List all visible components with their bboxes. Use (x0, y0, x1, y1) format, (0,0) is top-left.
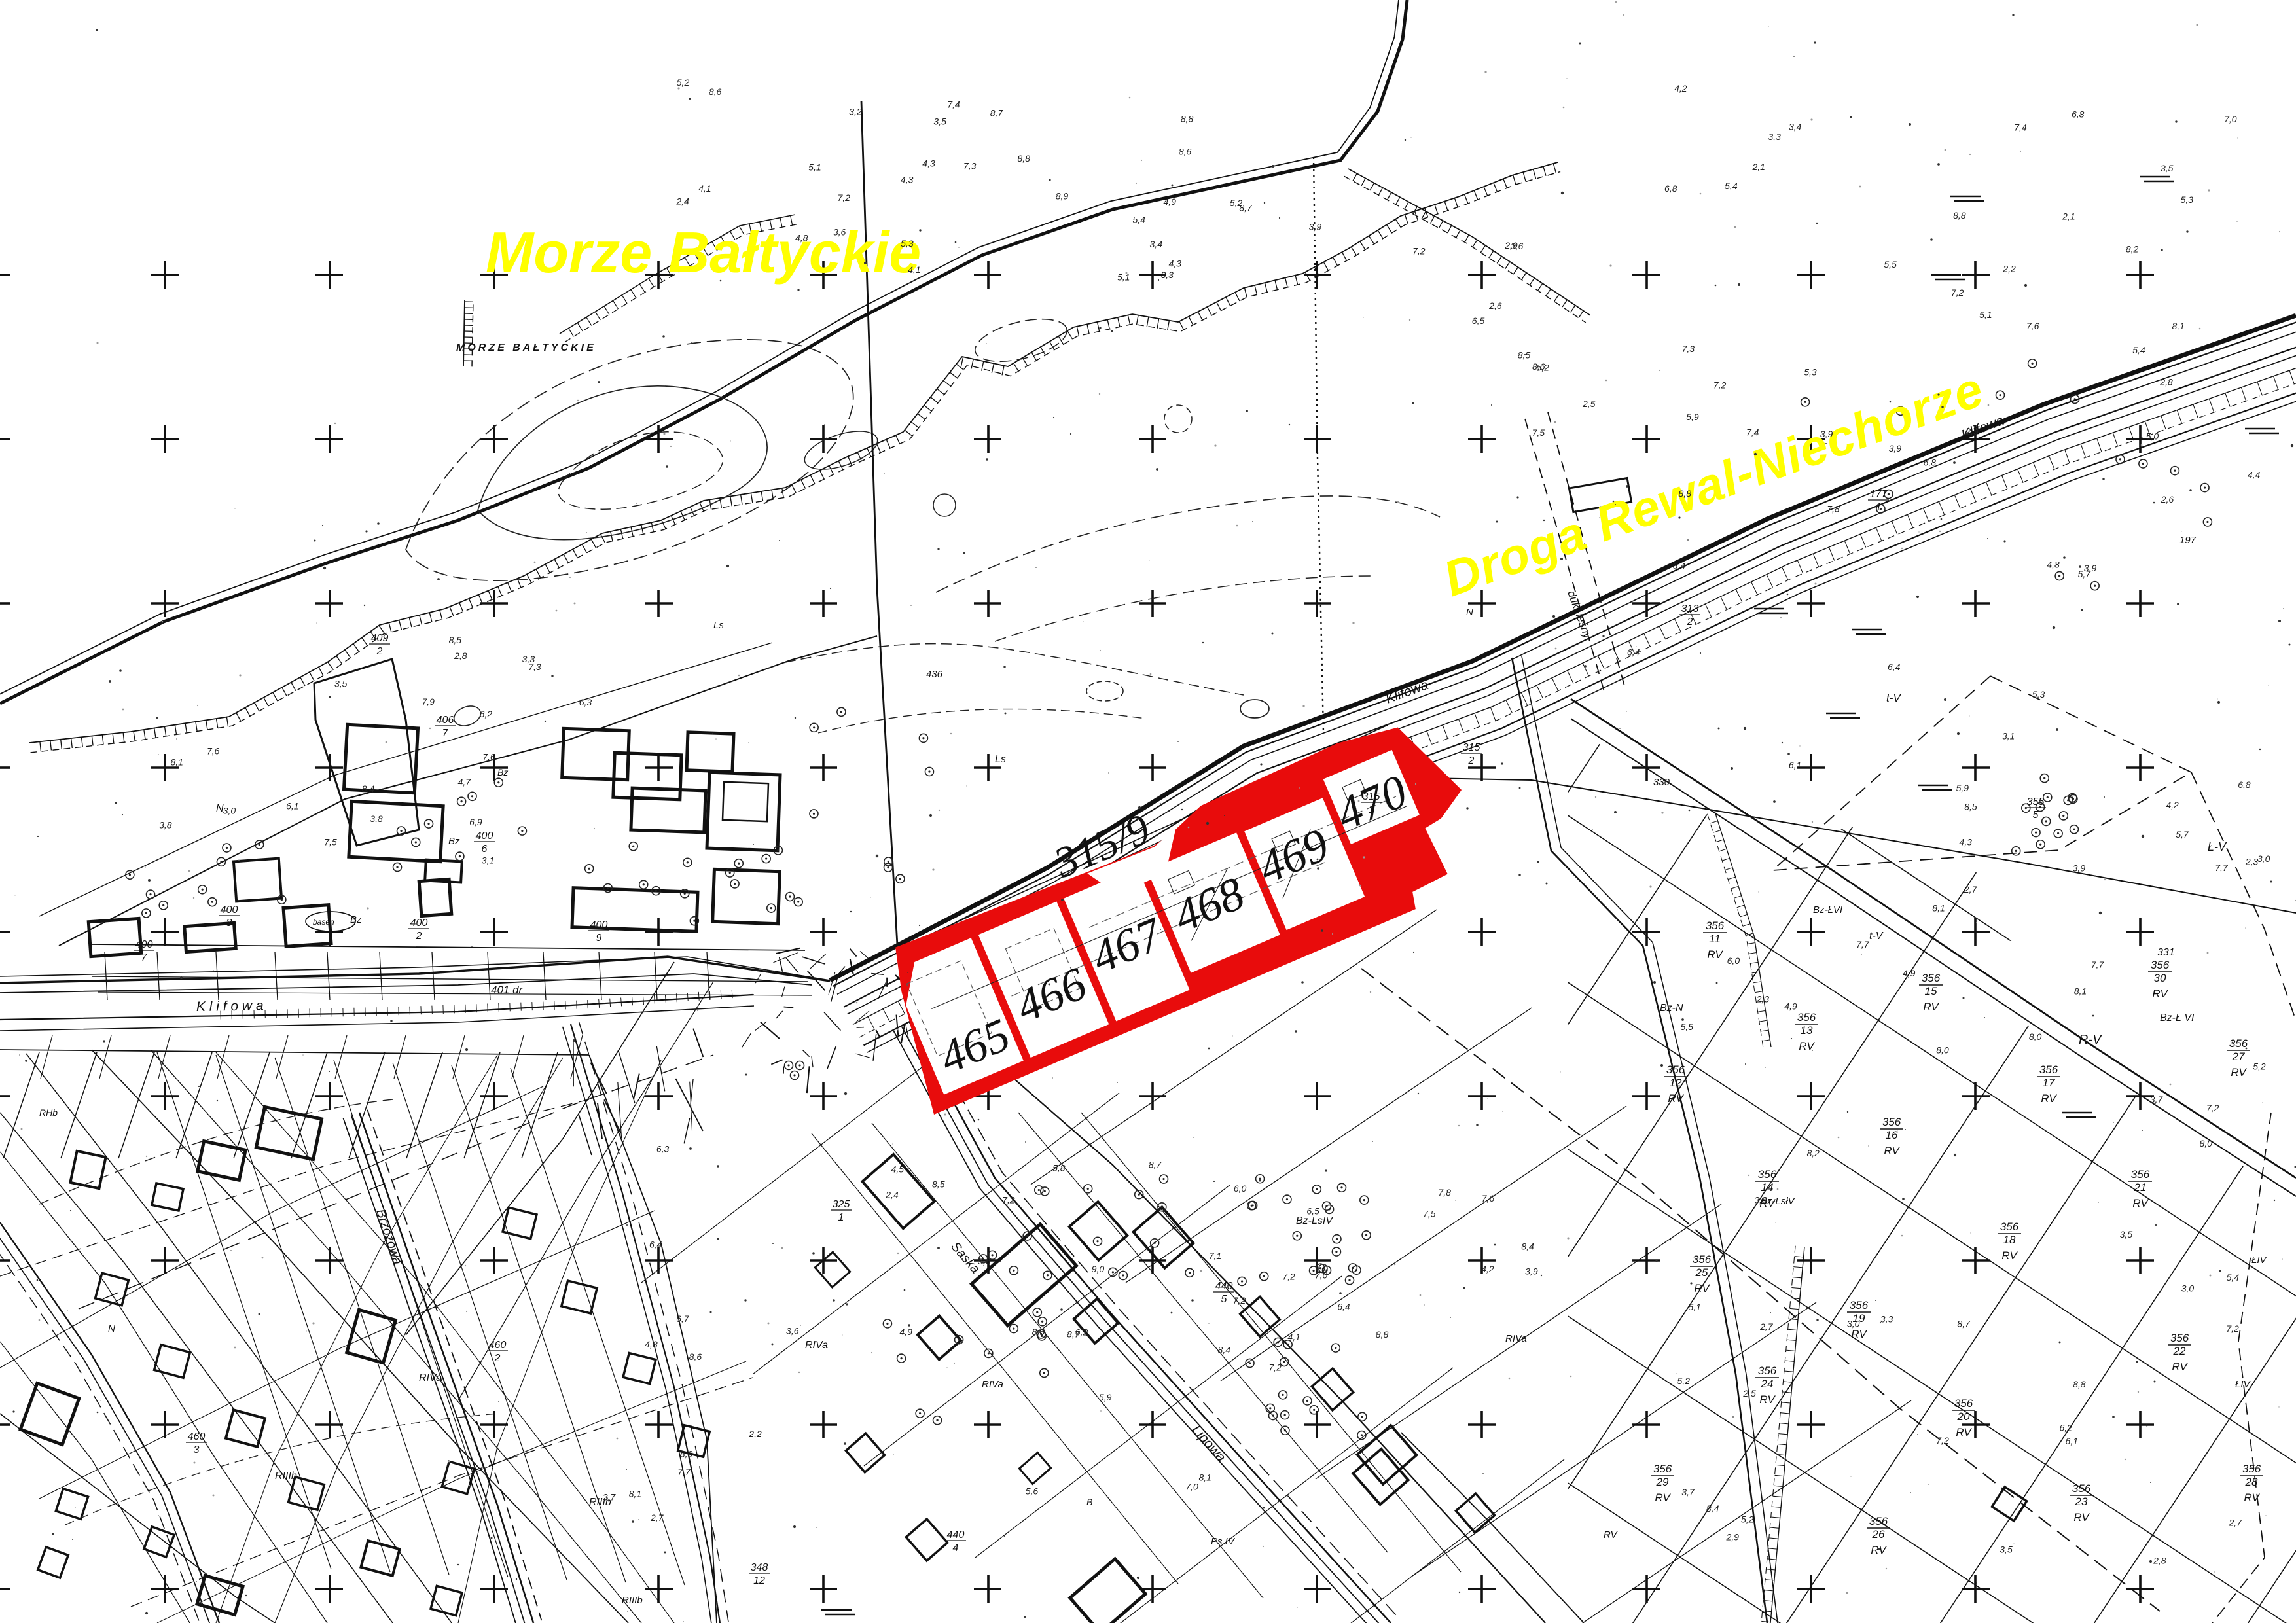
svg-text:8,6: 8,6 (1179, 146, 1192, 156)
svg-text:3,3: 3,3 (1768, 132, 1781, 142)
svg-text:3,7: 3,7 (2150, 1094, 2164, 1105)
svg-text:3,5: 3,5 (933, 116, 946, 126)
svg-text:6,0: 6,0 (1234, 1183, 1247, 1194)
svg-text:5,9: 5,9 (1099, 1392, 1112, 1402)
svg-text:8,4: 8,4 (1521, 1241, 1534, 1251)
svg-text:4,2: 4,2 (1481, 1264, 1494, 1274)
svg-text:2,6: 2,6 (2161, 494, 2174, 505)
svg-text:2,2: 2,2 (748, 1429, 762, 1439)
svg-text:5,5: 5,5 (1884, 259, 1897, 270)
svg-text:Bz-LsIV: Bz-LsIV (1296, 1215, 1333, 1226)
svg-text:331: 331 (2157, 947, 2175, 958)
svg-text:356: 356 (1758, 1364, 1777, 1377)
svg-text:3: 3 (194, 1444, 200, 1455)
svg-text:6,3: 6,3 (656, 1144, 670, 1154)
svg-text:N: N (1466, 607, 1473, 618)
svg-text:8,6: 8,6 (1532, 361, 1545, 372)
svg-text:8,5: 8,5 (1964, 802, 1977, 812)
svg-text:406: 406 (437, 715, 454, 726)
svg-text:8,1: 8,1 (2074, 986, 2087, 997)
svg-text:7,2: 7,2 (1282, 1272, 1295, 1282)
svg-text:2,1: 2,1 (1751, 162, 1765, 172)
svg-text:8,8: 8,8 (1953, 210, 1966, 221)
svg-text:RV: RV (1668, 1092, 1684, 1105)
svg-text:3,6: 3,6 (833, 226, 846, 237)
svg-text:4,5: 4,5 (891, 1164, 905, 1175)
svg-text:RIVa: RIVa (982, 1379, 1003, 1390)
svg-text:7,0: 7,0 (1315, 1270, 1328, 1280)
svg-text:355: 355 (2027, 796, 2045, 808)
svg-text:8,1: 8,1 (629, 1488, 641, 1499)
svg-text:2: 2 (1687, 616, 1693, 628)
svg-text:4,2: 4,2 (2166, 800, 2179, 810)
svg-text:8,4: 8,4 (1218, 1345, 1231, 1355)
svg-text:7,7: 7,7 (1856, 939, 1870, 950)
svg-text:5,1: 5,1 (808, 162, 821, 173)
svg-text:5,1: 5,1 (1688, 1302, 1700, 1312)
svg-text:5,4: 5,4 (2227, 1272, 2240, 1283)
svg-text:356: 356 (2151, 959, 2170, 971)
svg-text:8,8: 8,8 (2073, 1379, 2086, 1389)
svg-text:27: 27 (2232, 1050, 2245, 1063)
svg-text:356: 356 (1666, 1063, 1685, 1076)
svg-text:400: 400 (590, 919, 608, 931)
svg-text:5,2: 5,2 (2253, 1061, 2266, 1072)
svg-text:356: 356 (1954, 1397, 1973, 1410)
svg-text:RV: RV (2152, 988, 2168, 1000)
svg-text:5,5: 5,5 (978, 1256, 991, 1266)
svg-text:11: 11 (1709, 933, 1721, 945)
svg-text:18: 18 (2003, 1234, 2016, 1246)
svg-text:7,3: 7,3 (963, 161, 977, 171)
svg-text:8,1: 8,1 (1932, 903, 1945, 914)
svg-text:Bz-ŁVI: Bz-ŁVI (1813, 904, 1842, 916)
svg-text:8,8: 8,8 (1679, 488, 1692, 499)
svg-text:7,5: 7,5 (324, 836, 337, 847)
svg-text:RV: RV (2041, 1092, 2057, 1105)
svg-text:17: 17 (2043, 1077, 2055, 1089)
svg-text:3,2: 3,2 (849, 107, 862, 117)
svg-text:4,1: 4,1 (1287, 1332, 1300, 1342)
svg-text:Ls: Ls (713, 620, 724, 631)
svg-text:6,2: 6,2 (1075, 1327, 1088, 1337)
svg-text:26: 26 (1872, 1528, 1885, 1541)
svg-text:7,2: 7,2 (837, 192, 850, 203)
svg-text:440: 440 (947, 1529, 965, 1541)
svg-text:2: 2 (1468, 755, 1475, 766)
svg-text:6,5: 6,5 (1472, 315, 1485, 326)
svg-text:7: 7 (141, 952, 148, 963)
svg-text:8,8: 8,8 (1181, 113, 1194, 124)
svg-text:6,2: 6,2 (480, 709, 493, 719)
svg-text:6,1: 6,1 (1789, 760, 1801, 770)
svg-text:5: 5 (1221, 1294, 1227, 1305)
svg-text:2,4: 2,4 (675, 196, 689, 207)
svg-text:6,4: 6,4 (1337, 1302, 1350, 1312)
svg-text:4,3: 4,3 (1169, 258, 1182, 268)
svg-text:3,3: 3,3 (522, 654, 535, 664)
svg-text:7,2: 7,2 (1268, 1363, 1282, 1373)
svg-text:7,6: 7,6 (1482, 1193, 1495, 1204)
svg-text:460: 460 (489, 1340, 507, 1351)
svg-text:8,1: 8,1 (1198, 1472, 1211, 1483)
svg-text:3,4: 3,4 (1789, 121, 1802, 132)
svg-text:8,2: 8,2 (1806, 1148, 1820, 1158)
svg-text:4,8: 4,8 (645, 1339, 658, 1349)
svg-text:330: 330 (1653, 777, 1670, 788)
svg-text:12: 12 (1670, 1077, 1682, 1089)
svg-text:9: 9 (596, 933, 602, 944)
svg-text:8,1: 8,1 (170, 757, 183, 768)
svg-text:5,2: 5,2 (1741, 1514, 1754, 1525)
svg-text:7,2: 7,2 (1233, 1295, 1246, 1306)
svg-text:5,8: 5,8 (1052, 1163, 1066, 1173)
svg-text:7,4: 7,4 (947, 99, 960, 109)
svg-text:4,2: 4,2 (1674, 83, 1687, 94)
svg-text:6,5: 6,5 (1306, 1206, 1319, 1217)
svg-text:3,8: 3,8 (1754, 1194, 1767, 1205)
svg-text:4,9: 4,9 (1784, 1001, 1797, 1012)
svg-text:21: 21 (2134, 1181, 2147, 1194)
svg-text:B: B (1086, 1497, 1092, 1507)
svg-text:2,8: 2,8 (2153, 1555, 2166, 1565)
svg-text:356: 356 (2229, 1037, 2248, 1050)
svg-text:3,0: 3,0 (2181, 1283, 2195, 1293)
svg-text:RV: RV (2231, 1066, 2247, 1079)
svg-text:6,8: 6,8 (2072, 109, 2085, 119)
svg-text:409: 409 (371, 633, 389, 644)
svg-text:3,9: 3,9 (1525, 1266, 1538, 1276)
svg-text:460: 460 (188, 1431, 206, 1442)
svg-text:7,5: 7,5 (1423, 1209, 1436, 1219)
svg-text:2: 2 (376, 646, 383, 657)
svg-text:6,3: 6,3 (579, 697, 592, 707)
svg-text:7,7: 7,7 (677, 1467, 691, 1477)
svg-text:3,8: 3,8 (370, 813, 383, 824)
svg-text:7,2: 7,2 (1412, 245, 1426, 256)
svg-text:7,2: 7,2 (2206, 1103, 2219, 1113)
svg-text:5,6: 5,6 (1026, 1486, 1039, 1497)
svg-text:6,9: 6,9 (469, 817, 482, 827)
svg-text:3,0: 3,0 (1847, 1319, 1860, 1329)
svg-text:RV: RV (1851, 1328, 1867, 1340)
svg-text:4,9: 4,9 (900, 1327, 913, 1337)
svg-text:8,7: 8,7 (1957, 1319, 1971, 1329)
svg-text:RV: RV (1604, 1529, 1619, 1541)
svg-text:3,6: 3,6 (786, 1326, 799, 1336)
svg-text:400: 400 (135, 939, 153, 950)
svg-text:356: 356 (2170, 1332, 2189, 1344)
svg-text:3,5: 3,5 (334, 678, 348, 688)
svg-text:8,4: 8,4 (1706, 1503, 1719, 1514)
svg-text:3,5: 3,5 (2000, 1544, 2013, 1554)
svg-text:Ps IV: Ps IV (1211, 1536, 1236, 1547)
svg-text:356: 356 (1922, 972, 1941, 984)
svg-text:2,3: 2,3 (1756, 994, 1770, 1005)
svg-text:7,0: 7,0 (2224, 114, 2237, 124)
svg-text:2,7: 2,7 (2228, 1518, 2242, 1528)
svg-text:4,9: 4,9 (1903, 968, 1916, 978)
svg-text:12: 12 (753, 1575, 765, 1586)
svg-text:t-V: t-V (1869, 931, 1884, 942)
svg-text:5,7: 5,7 (2176, 829, 2189, 840)
svg-text:3,5: 3,5 (2161, 163, 2174, 173)
svg-text:3,9: 3,9 (1820, 429, 1833, 439)
svg-text:6,2: 6,2 (2059, 1422, 2072, 1433)
svg-text:4: 4 (953, 1543, 959, 1554)
svg-text:5: 5 (2033, 810, 2039, 821)
svg-text:7,8: 7,8 (1827, 504, 1840, 514)
svg-text:3,9: 3,9 (1309, 222, 1322, 232)
svg-text:5,2: 5,2 (677, 77, 690, 88)
svg-text:RHb: RHb (39, 1107, 58, 1118)
svg-text:7,5: 7,5 (1532, 427, 1545, 438)
svg-text:356: 356 (1758, 1168, 1777, 1181)
svg-text:8,7: 8,7 (990, 107, 1004, 118)
svg-text:RV: RV (1707, 948, 1723, 961)
svg-text:8,2: 8,2 (2126, 243, 2139, 254)
svg-text:8,6: 8,6 (709, 86, 722, 97)
svg-text:8,5: 8,5 (932, 1179, 945, 1189)
svg-text:5,3: 5,3 (2181, 194, 2194, 205)
svg-text:8,9: 8,9 (1056, 190, 1069, 201)
svg-text:7,2: 7,2 (2226, 1323, 2239, 1334)
svg-text:3,0: 3,0 (223, 806, 236, 816)
svg-text:3,9: 3,9 (1889, 443, 1902, 454)
svg-text:28: 28 (2245, 1476, 2258, 1488)
svg-text:4,7: 4,7 (457, 777, 471, 787)
svg-text:5,4: 5,4 (1132, 214, 1145, 224)
svg-text:325: 325 (833, 1199, 850, 1210)
svg-text:356: 356 (1850, 1299, 1869, 1311)
svg-text:6,4: 6,4 (1888, 662, 1901, 672)
svg-text:5,5: 5,5 (1680, 1022, 1693, 1032)
svg-text:RIIIb: RIIIb (275, 1471, 297, 1482)
svg-text:6,1: 6,1 (286, 800, 298, 811)
svg-text:3,3: 3,3 (1880, 1314, 1893, 1325)
svg-text:356: 356 (1869, 1515, 1888, 1527)
svg-text:2,1: 2,1 (2062, 211, 2075, 221)
svg-text:348: 348 (751, 1562, 768, 1573)
svg-text:1: 1 (1876, 502, 1882, 513)
svg-text:7,1: 7,1 (1209, 1251, 1221, 1261)
svg-text:3,1: 3,1 (482, 855, 494, 865)
svg-text:7,2: 7,2 (1936, 1435, 1949, 1446)
svg-text:356: 356 (2039, 1063, 2058, 1076)
svg-text:6,4: 6,4 (1673, 560, 1686, 571)
svg-text:8,6: 8,6 (689, 1351, 702, 1362)
svg-text:177: 177 (1870, 489, 1888, 500)
svg-text:436: 436 (926, 669, 943, 680)
svg-text:356: 356 (1693, 1253, 1712, 1266)
svg-text:ŁIV: ŁIV (2251, 1255, 2268, 1266)
svg-text:8,5: 8,5 (1518, 350, 1531, 361)
svg-text:4,4: 4,4 (2248, 469, 2261, 480)
svg-text:RIVa: RIVa (805, 1340, 828, 1351)
svg-text:7,4: 7,4 (2014, 122, 2027, 132)
svg-text:5,0: 5,0 (2146, 431, 2159, 442)
svg-text:RV: RV (2244, 1491, 2260, 1504)
svg-text:4,3: 4,3 (1959, 837, 1972, 847)
svg-text:5,3: 5,3 (2032, 689, 2045, 700)
svg-text:356: 356 (1882, 1116, 1901, 1128)
svg-text:7,9: 7,9 (422, 696, 435, 707)
svg-text:400: 400 (221, 904, 238, 916)
svg-text:2: 2 (494, 1353, 501, 1364)
svg-text:4,8: 4,8 (2047, 559, 2060, 569)
svg-text:1: 1 (838, 1212, 844, 1223)
svg-text:2,5: 2,5 (1582, 399, 1596, 409)
svg-text:400: 400 (410, 918, 428, 929)
svg-text:313: 313 (1681, 603, 1699, 615)
svg-text:3,7: 3,7 (1681, 1487, 1695, 1497)
svg-text:2,5: 2,5 (1742, 1388, 1756, 1399)
svg-text:RV: RV (1759, 1393, 1776, 1406)
svg-text:356: 356 (2072, 1482, 2091, 1495)
svg-text:8,7: 8,7 (1149, 1160, 1162, 1170)
svg-text:4,9: 4,9 (1163, 196, 1176, 207)
svg-text:K l i f o w a: K l i f o w a (196, 998, 264, 1014)
svg-text:13: 13 (1801, 1024, 1813, 1037)
svg-text:5,1: 5,1 (1117, 272, 1130, 282)
svg-text:8,0: 8,0 (2199, 1138, 2212, 1149)
svg-text:Bz-Ł VI: Bz-Ł VI (2160, 1012, 2195, 1024)
svg-text:7,2: 7,2 (1951, 287, 1964, 298)
svg-text:RV: RV (1923, 1001, 1939, 1013)
svg-text:2,9: 2,9 (1504, 240, 1518, 251)
svg-text:7,3: 7,3 (1682, 344, 1695, 354)
svg-text:RIVa: RIVa (1505, 1333, 1527, 1344)
svg-text:8,0: 8,0 (680, 1448, 693, 1459)
svg-text:25: 25 (1695, 1266, 1708, 1279)
svg-text:N: N (108, 1323, 115, 1334)
svg-text:7,4: 7,4 (1746, 427, 1759, 438)
svg-text:3,4: 3,4 (1150, 239, 1163, 249)
svg-text:5,9: 5,9 (1956, 783, 1969, 793)
svg-text:6,1: 6,1 (2066, 1436, 2078, 1446)
svg-text:5,2: 5,2 (1677, 1376, 1691, 1386)
svg-text:RV: RV (1694, 1282, 1710, 1294)
svg-text:8,0: 8,0 (2029, 1031, 2042, 1042)
svg-text:4,1: 4,1 (698, 183, 711, 194)
svg-text:Bz: Bz (497, 767, 508, 777)
svg-text:22: 22 (2173, 1345, 2186, 1357)
svg-text:7,0: 7,0 (1185, 1482, 1198, 1492)
svg-text:7,2: 7,2 (1002, 1195, 1015, 1205)
svg-text:6,8: 6,8 (2238, 779, 2251, 790)
svg-text:3,1: 3,1 (2002, 730, 2015, 741)
svg-text:2,9: 2,9 (1725, 1531, 1739, 1542)
svg-text:3,0: 3,0 (2257, 853, 2270, 864)
svg-text:401 dr: 401 dr (491, 984, 524, 996)
svg-text:5,2: 5,2 (1230, 198, 1243, 208)
svg-text:315: 315 (1463, 742, 1480, 753)
svg-text:RV: RV (2172, 1361, 2188, 1373)
svg-text:7,2: 7,2 (1713, 380, 1727, 391)
svg-text:1: 1 (1369, 804, 1374, 815)
svg-text:7,8: 7,8 (1438, 1187, 1451, 1198)
svg-text:8,8: 8,8 (1376, 1329, 1389, 1340)
svg-text:R-V: R-V (2079, 1033, 2102, 1047)
svg-text:5,3: 5,3 (901, 238, 914, 249)
svg-text:356: 356 (1797, 1011, 1816, 1024)
svg-text:356: 356 (2131, 1168, 2150, 1181)
svg-text:4,3: 4,3 (901, 175, 914, 185)
svg-text:20: 20 (1957, 1410, 1970, 1423)
svg-text:30: 30 (2154, 972, 2166, 984)
svg-text:2,7: 2,7 (1759, 1321, 1774, 1332)
svg-text:6,7: 6,7 (676, 1313, 690, 1324)
svg-text:7,6: 7,6 (207, 745, 220, 756)
svg-text:6,8: 6,8 (1924, 457, 1937, 467)
svg-text:RV: RV (1655, 1491, 1671, 1504)
svg-text:Bz: Bz (350, 914, 362, 925)
svg-text:RV: RV (2073, 1511, 2090, 1524)
svg-text:23: 23 (2075, 1495, 2088, 1508)
svg-text:7: 7 (442, 728, 449, 739)
svg-text:4,3: 4,3 (922, 158, 935, 168)
svg-text:14: 14 (1761, 1181, 1774, 1194)
svg-text:6,8: 6,8 (1664, 183, 1677, 194)
svg-text:RV: RV (2001, 1249, 2018, 1262)
svg-text:3,3: 3,3 (1160, 270, 1174, 280)
svg-text:2: 2 (416, 931, 422, 942)
svg-text:7,6: 7,6 (482, 751, 495, 762)
svg-text:2,7: 2,7 (1964, 884, 1978, 895)
svg-text:ŁIV: ŁIV (2235, 1379, 2251, 1390)
svg-text:Bz: Bz (448, 836, 460, 847)
svg-text:2,8: 2,8 (2159, 376, 2173, 387)
svg-text:6,4: 6,4 (649, 1239, 662, 1249)
svg-text:RV: RV (1956, 1426, 1972, 1438)
svg-text:2,4: 2,4 (885, 1190, 899, 1200)
svg-text:4,8: 4,8 (795, 232, 808, 243)
svg-text:RIIIb: RIIIb (622, 1595, 643, 1606)
svg-text:24: 24 (1761, 1378, 1774, 1390)
svg-text:5,4: 5,4 (1725, 181, 1738, 191)
svg-text:356: 356 (1706, 919, 1725, 932)
svg-text:8,0: 8,0 (1936, 1044, 1949, 1055)
svg-text:197: 197 (2179, 535, 2197, 546)
svg-text:8,4: 8,4 (362, 783, 375, 794)
svg-text:2,6: 2,6 (1488, 300, 1502, 311)
svg-text:3,8: 3,8 (159, 819, 172, 830)
svg-text:6,4: 6,4 (1627, 647, 1640, 657)
svg-text:8,1: 8,1 (2172, 321, 2184, 331)
svg-text:RIVa: RIVa (419, 1372, 442, 1383)
svg-text:16: 16 (1886, 1129, 1898, 1141)
svg-text:8: 8 (226, 918, 232, 929)
svg-text:356: 356 (1653, 1463, 1672, 1475)
svg-text:8,8: 8,8 (1017, 153, 1030, 164)
svg-text:5,3: 5,3 (1804, 367, 1817, 378)
svg-text:3,7: 3,7 (603, 1491, 617, 1502)
svg-text:2,8: 2,8 (454, 651, 467, 661)
svg-text:t-V: t-V (1886, 692, 1901, 704)
svg-text:RV: RV (2132, 1197, 2149, 1209)
svg-text:6: 6 (482, 844, 488, 855)
svg-text:5,1: 5,1 (1979, 310, 1992, 320)
svg-text:7,7: 7,7 (2091, 959, 2105, 970)
svg-text:2,7: 2,7 (650, 1512, 664, 1523)
svg-text:Morze Bałtyckie: Morze Bałtyckie (486, 220, 921, 285)
svg-text:5,9: 5,9 (1686, 412, 1699, 422)
svg-text:356: 356 (2242, 1463, 2261, 1475)
svg-text:7,6: 7,6 (2026, 321, 2039, 331)
svg-text:400: 400 (476, 830, 493, 842)
svg-text:2,9: 2,9 (1965, 426, 1979, 437)
svg-text:5,7: 5,7 (2078, 569, 2092, 579)
